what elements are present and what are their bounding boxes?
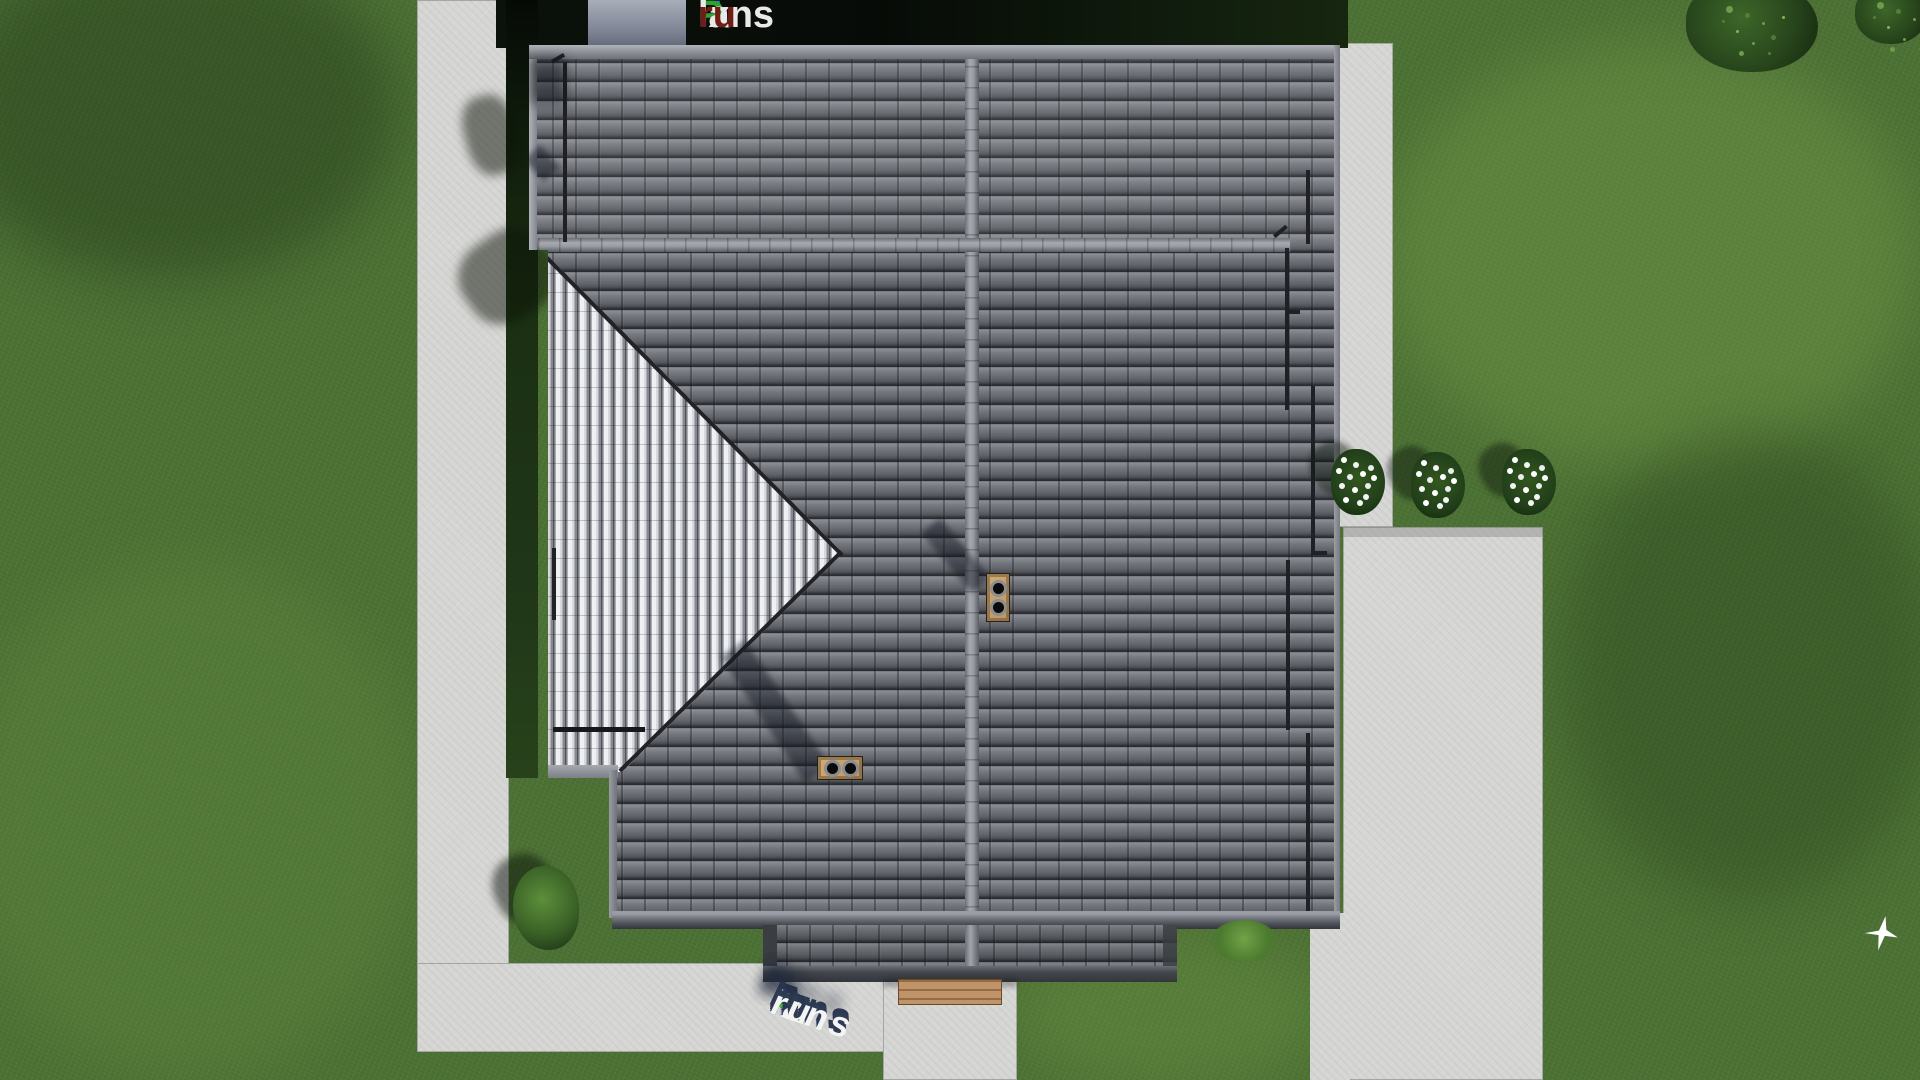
- tree-foliage-speckles: [1877, 2, 1884, 9]
- driveway-pad-extension: [1310, 913, 1350, 1080]
- white-bird-icon: [1860, 912, 1902, 954]
- flower-bush-3: [1502, 449, 1556, 515]
- flower-bush-2: [1411, 452, 1465, 518]
- flower-bush-1: [1331, 449, 1385, 515]
- white-flowers: [1341, 457, 1347, 463]
- flue-opening: [990, 580, 1007, 597]
- snow-guard-bar: [553, 727, 645, 732]
- white-flowers: [1512, 457, 1518, 463]
- flue-opening: [990, 599, 1007, 616]
- roof-pipe-bright-face: [552, 548, 556, 620]
- roof-cable-3: [1285, 248, 1289, 410]
- porch-ridge: [965, 925, 979, 966]
- render-stage: FixPlans.ru FixPlans.ru: [0, 0, 1920, 1080]
- logo-letter: ru: [698, 0, 736, 37]
- roof-section-top: [529, 45, 1340, 250]
- eave-left: [548, 765, 618, 778]
- white-flowers: [1421, 460, 1427, 466]
- porch-roof: [763, 925, 1177, 982]
- roof-cable-4-hook: [1311, 551, 1327, 555]
- concrete-block: [588, 0, 686, 52]
- roof-cable-3-tick: [1286, 310, 1300, 314]
- fascia-left-low: [609, 770, 617, 918]
- roof-cable-6: [1306, 733, 1310, 913]
- roof-corner-shadow: [529, 58, 565, 104]
- grass-patch-light-topright: [1380, 40, 1920, 470]
- flue-opening: [824, 760, 841, 777]
- tree-foliage-speckles: [1726, 6, 1733, 13]
- roof-ridge-vertical: [965, 45, 979, 920]
- flue-opening: [842, 760, 859, 777]
- chimney-1: [986, 573, 1010, 622]
- driveway-pad: [1343, 527, 1543, 1080]
- doormat: [898, 979, 1002, 1005]
- house-roof: [529, 45, 1340, 920]
- driveway-pad-edge: [1343, 527, 1543, 537]
- chimney-2: [817, 756, 863, 780]
- corner-bush: [1211, 920, 1277, 962]
- roof-cable-2: [1306, 170, 1310, 244]
- roof-ridge-horizontal: [538, 238, 1290, 252]
- garden-bush: [513, 866, 579, 950]
- roof-cable-5: [1286, 560, 1290, 730]
- fascia-top: [529, 45, 1340, 59]
- grass-patch-dark-right: [1560, 430, 1920, 900]
